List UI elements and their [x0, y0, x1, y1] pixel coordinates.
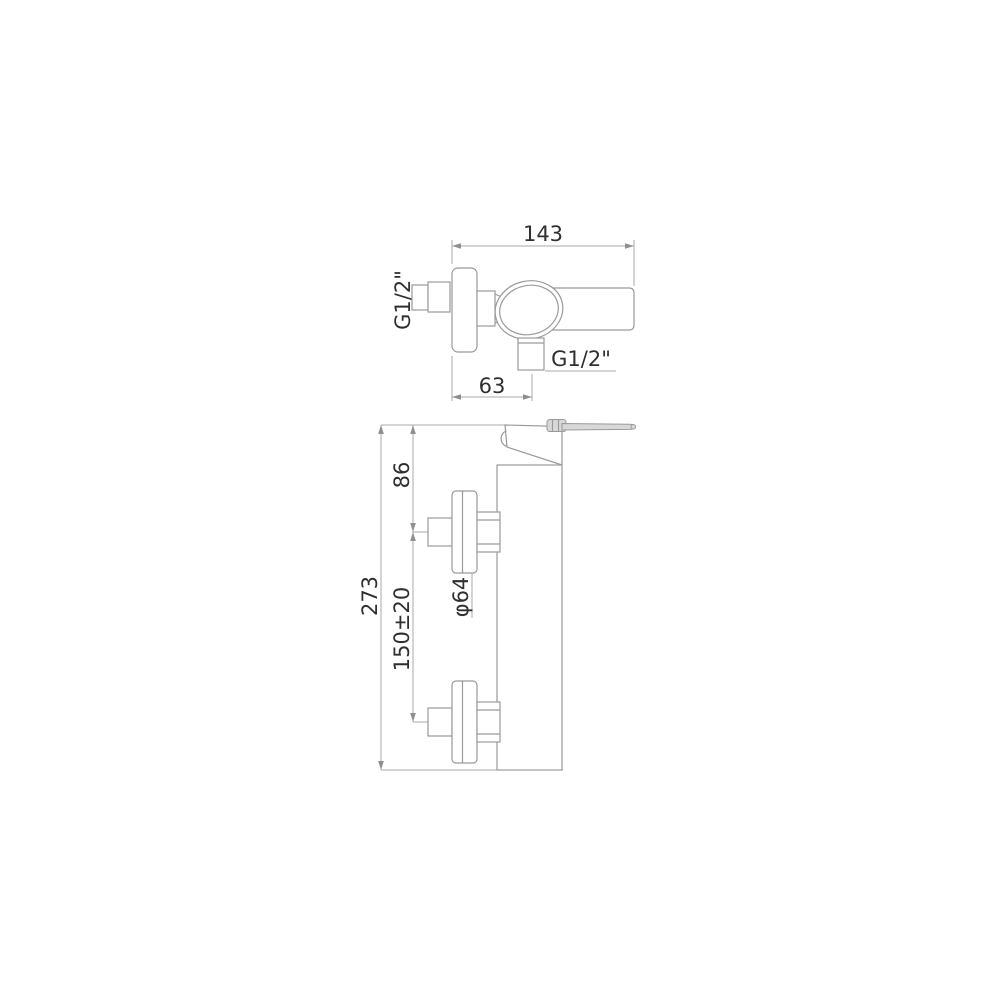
arrowhead — [378, 761, 384, 770]
union-stub — [428, 518, 452, 546]
dim-86-text: 86 — [390, 462, 414, 489]
union-stub — [428, 708, 452, 736]
dim-273-text: 273 — [358, 576, 382, 616]
top-view: 143 G1/2" G1/2" — [391, 222, 634, 401]
outlet-thread-callout: G1/2" — [545, 347, 616, 371]
union-escutcheon — [452, 681, 477, 763]
arrowhead — [625, 243, 634, 249]
lever-arm — [562, 424, 635, 431]
arrowhead — [410, 425, 416, 434]
dim-chain-86-150: 86 150±20 — [390, 425, 428, 722]
inlet-thread-label: G1/2" — [391, 270, 415, 330]
wall-escutcheon-side — [452, 268, 477, 352]
drawing-sheet: 143 G1/2" G1/2" — [0, 0, 1000, 1000]
mixer-body-round — [490, 275, 569, 346]
inlet-stub — [412, 282, 450, 312]
dia-64-callout: φ64 — [449, 573, 473, 618]
wall-union-top — [428, 491, 500, 573]
wall-union-bottom — [428, 681, 500, 763]
outlet-thread-label: G1/2" — [551, 347, 611, 371]
arrowhead — [452, 243, 461, 249]
arrowhead — [378, 425, 384, 434]
technical-drawing: 143 G1/2" G1/2" — [0, 0, 1000, 1000]
dim-overall-273: 273 — [358, 425, 384, 770]
body-connector — [477, 291, 495, 326]
inlet-pipe-body — [428, 282, 450, 312]
arrowhead — [410, 523, 416, 532]
lever-tip — [631, 425, 636, 430]
union-escutcheon — [452, 491, 477, 573]
arrowhead — [410, 713, 416, 722]
arrowhead — [523, 394, 532, 400]
union-hex-nut — [477, 512, 500, 552]
front-view: 273 86 150±20 — [358, 420, 636, 771]
dim-chain-leaders — [413, 532, 428, 722]
dim-width-143: 143 — [452, 222, 634, 286]
inlet-pipe-end — [412, 285, 428, 310]
spout-tube — [551, 288, 634, 330]
dim-63-text: 63 — [479, 374, 506, 398]
mixer-body — [497, 465, 562, 770]
dim-143-text: 143 — [523, 222, 563, 246]
dia-64-text: φ64 — [449, 577, 473, 618]
outlet-stub — [518, 338, 544, 370]
arrowhead — [452, 394, 461, 400]
dim-143-extension-lines — [452, 240, 634, 286]
tube-outline — [551, 288, 634, 330]
arrowhead — [410, 532, 416, 541]
union-hex-nut — [477, 702, 500, 742]
lever-handle — [547, 420, 636, 432]
dim-150-text: 150±20 — [390, 587, 414, 671]
